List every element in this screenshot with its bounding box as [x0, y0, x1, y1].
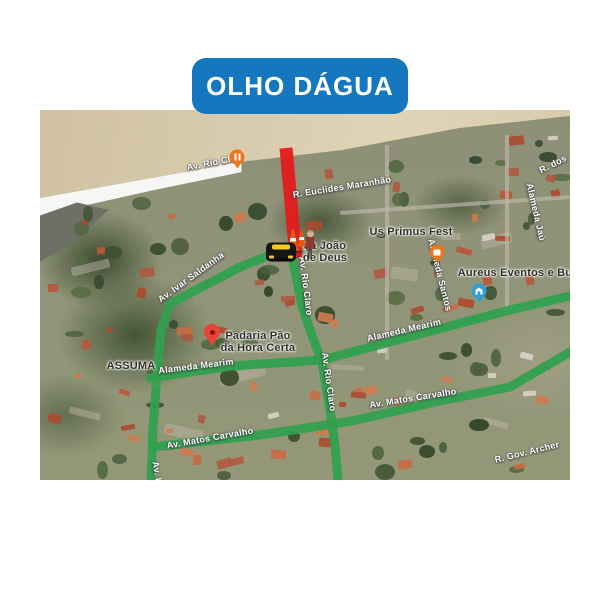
agent-icon [302, 230, 318, 260]
place-label: Us Primus Fest [370, 226, 453, 238]
place-label: ASSUMA [107, 360, 156, 372]
neighborhood-banner: OLHO DÁGUA [192, 58, 408, 114]
cafe-pin-icon [430, 245, 445, 260]
car-icon [266, 243, 296, 262]
place-label: Padaria Pãoda Hora Certa [221, 330, 296, 354]
banner-title: OLHO DÁGUA [206, 71, 394, 102]
place-label: Aureus Eventos e Bu [458, 267, 570, 279]
satellite-map: Av. Rio Cl.R. Euclides MaranhãoR. dosAla… [40, 110, 570, 480]
legend: CONES OU CAVALETE PARA INTERDIÇÃO VIATUR… [0, 485, 600, 594]
event-pin-icon [472, 284, 487, 299]
restaurant-pin-icon [230, 150, 245, 165]
padaria-pin-icon [204, 324, 220, 348]
